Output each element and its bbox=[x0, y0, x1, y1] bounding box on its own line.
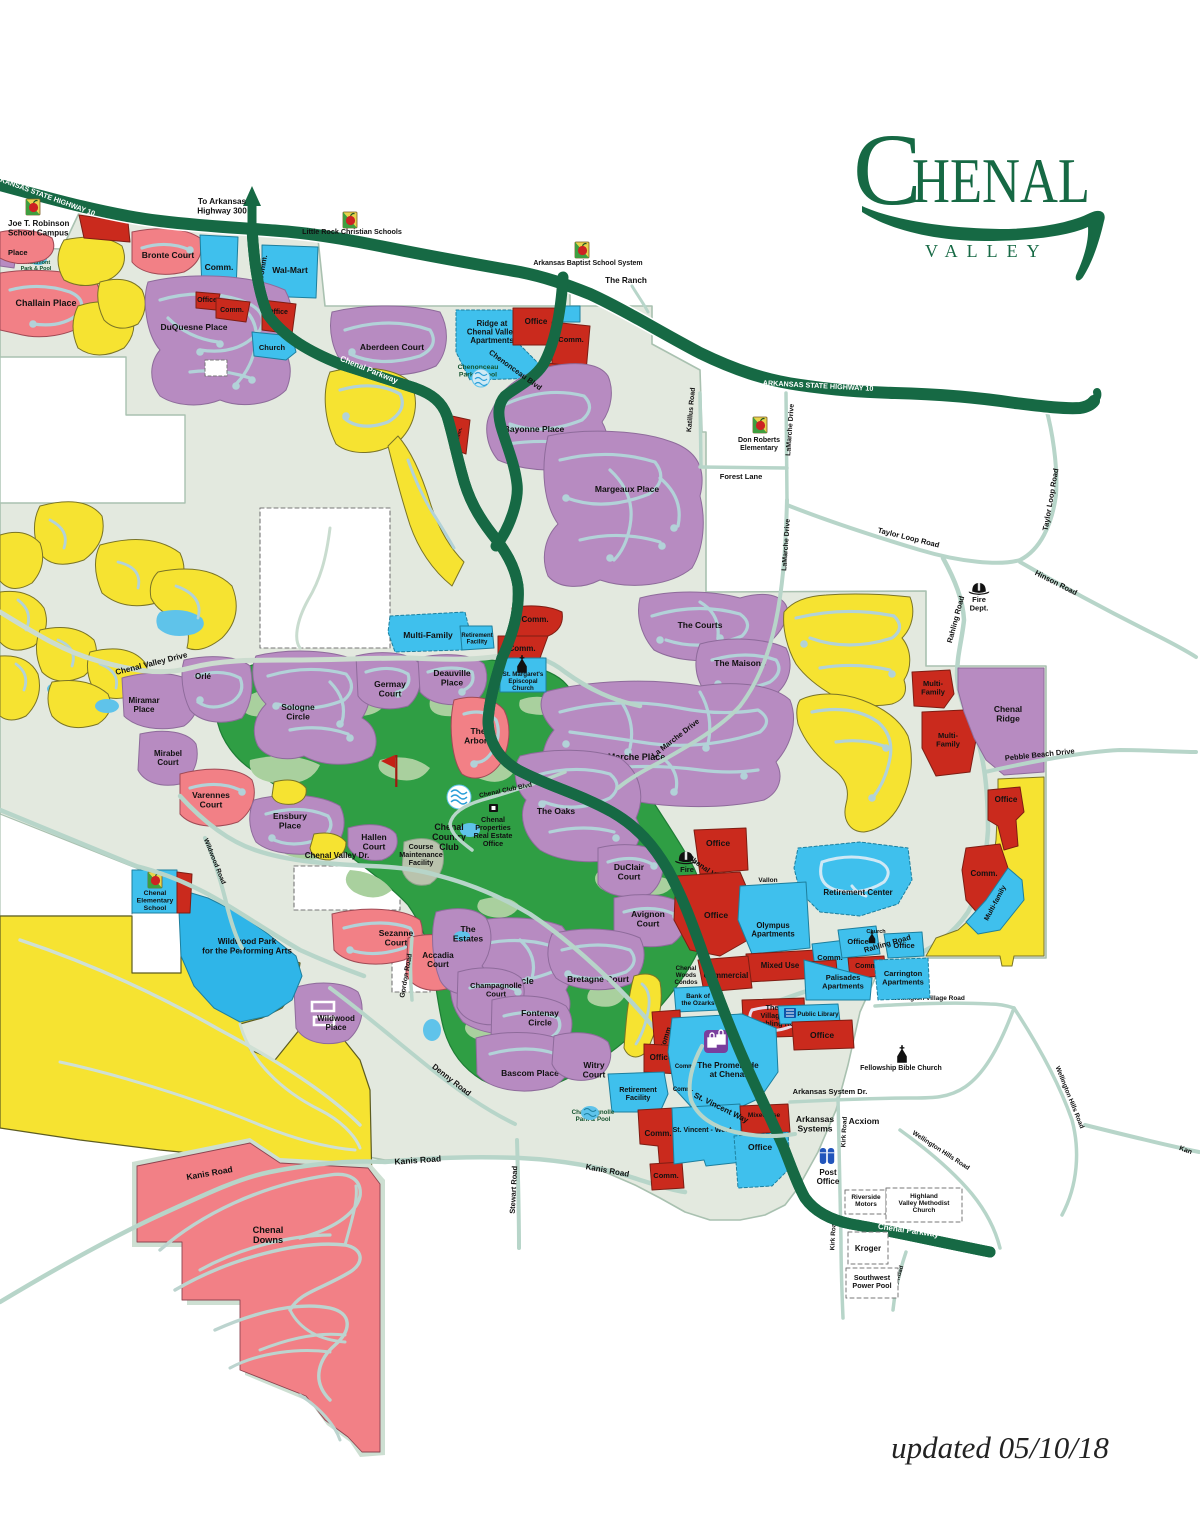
svg-text:Joe T. Robinson: Joe T. Robinson bbox=[8, 219, 69, 228]
svg-text:Bank of: Bank of bbox=[686, 993, 711, 1000]
svg-text:Comm.: Comm. bbox=[521, 615, 548, 624]
svg-text:Place: Place bbox=[326, 1023, 347, 1032]
svg-text:Place: Place bbox=[441, 678, 463, 688]
svg-text:HENAL: HENAL bbox=[912, 145, 1090, 216]
svg-text:DuClair: DuClair bbox=[614, 862, 645, 872]
svg-text:Condos: Condos bbox=[674, 979, 698, 986]
svg-text:Comm.: Comm. bbox=[653, 1171, 678, 1180]
svg-text:Systems: Systems bbox=[798, 1124, 833, 1134]
svg-text:for the Performing Arts: for the Performing Arts bbox=[202, 947, 292, 956]
svg-text:Germay: Germay bbox=[374, 679, 406, 689]
svg-text:Ensbury: Ensbury bbox=[273, 811, 307, 821]
svg-text:Bronte Court: Bronte Court bbox=[142, 250, 195, 260]
svg-text:Office: Office bbox=[706, 838, 730, 848]
svg-text:Retirement: Retirement bbox=[461, 633, 492, 639]
svg-text:The: The bbox=[460, 924, 475, 934]
svg-text:Court: Court bbox=[385, 938, 408, 948]
svg-text:Place: Place bbox=[279, 821, 301, 831]
svg-text:Church: Church bbox=[512, 685, 534, 692]
svg-text:Forest Lane: Forest Lane bbox=[720, 472, 763, 481]
svg-text:Apartments: Apartments bbox=[882, 978, 924, 987]
svg-text:Elementary: Elementary bbox=[740, 445, 778, 452]
svg-text:Office: Office bbox=[810, 1030, 834, 1040]
svg-text:Club: Club bbox=[439, 842, 459, 852]
svg-text:Comm.: Comm. bbox=[644, 1129, 671, 1138]
svg-text:Wildwood: Wildwood bbox=[317, 1014, 355, 1023]
svg-text:Acxiom: Acxiom bbox=[849, 1116, 880, 1126]
svg-text:Aberdeen Court: Aberdeen Court bbox=[360, 342, 424, 352]
svg-text:Park & Pool: Park & Pool bbox=[21, 266, 52, 272]
svg-text:Apartments: Apartments bbox=[751, 930, 795, 939]
svg-text:Family: Family bbox=[936, 740, 961, 749]
svg-text:Episcopal: Episcopal bbox=[508, 678, 538, 685]
svg-text:Witry: Witry bbox=[583, 1060, 604, 1070]
svg-text:Fellowship Bible Church: Fellowship Bible Church bbox=[860, 1065, 942, 1072]
svg-text:Highway 300: Highway 300 bbox=[197, 207, 247, 216]
svg-text:Comm.: Comm. bbox=[205, 262, 234, 272]
svg-text:Sologne: Sologne bbox=[281, 702, 315, 712]
svg-text:Little Rock Christian Schools: Little Rock Christian Schools bbox=[302, 227, 402, 236]
svg-text:Orlé: Orlé bbox=[195, 672, 212, 681]
svg-text:Place: Place bbox=[134, 705, 155, 714]
svg-text:Accadia: Accadia bbox=[422, 951, 454, 960]
svg-text:Highland: Highland bbox=[910, 1193, 938, 1200]
svg-text:Chenal: Chenal bbox=[994, 704, 1022, 714]
svg-text:Wildwood Park: Wildwood Park bbox=[218, 937, 277, 946]
svg-text:Bayonne Place: Bayonne Place bbox=[504, 424, 565, 434]
svg-text:Bretagne Court: Bretagne Court bbox=[567, 974, 629, 984]
svg-text:VALLEY: VALLEY bbox=[925, 241, 1049, 261]
svg-text:Estates: Estates bbox=[453, 934, 484, 944]
svg-text:the Ozarks: the Ozarks bbox=[681, 1000, 715, 1007]
svg-text:Circle: Circle bbox=[286, 712, 310, 722]
svg-text:Mirabel: Mirabel bbox=[154, 749, 182, 758]
svg-text:Office: Office bbox=[483, 839, 503, 848]
svg-text:Varennes: Varennes bbox=[192, 790, 230, 800]
svg-text:Apartments: Apartments bbox=[470, 336, 514, 345]
svg-text:Apartments: Apartments bbox=[822, 982, 864, 991]
svg-text:School: School bbox=[144, 905, 167, 912]
svg-text:Court: Court bbox=[200, 800, 223, 810]
svg-text:Margeaux Place: Margeaux Place bbox=[595, 484, 660, 494]
svg-text:Arkansas System Dr.: Arkansas System Dr. bbox=[793, 1087, 868, 1096]
svg-text:Don Roberts: Don Roberts bbox=[738, 437, 780, 444]
svg-text:Church: Church bbox=[259, 343, 286, 352]
svg-text:Court: Court bbox=[379, 689, 402, 699]
svg-text:The Ranch: The Ranch bbox=[605, 276, 647, 285]
svg-text:Circle: Circle bbox=[528, 1018, 552, 1028]
svg-text:Place: Place bbox=[8, 248, 28, 257]
svg-text:Family: Family bbox=[921, 688, 946, 697]
svg-text:The Oaks: The Oaks bbox=[537, 806, 576, 816]
svg-text:DuQuesne Place: DuQuesne Place bbox=[160, 322, 227, 332]
svg-text:Vallon: Vallon bbox=[758, 877, 777, 884]
svg-text:Court: Court bbox=[427, 960, 449, 969]
svg-text:Sezanne: Sezanne bbox=[379, 928, 414, 938]
svg-text:Office: Office bbox=[704, 910, 728, 920]
svg-text:Arkansas: Arkansas bbox=[796, 1114, 835, 1124]
svg-text:Comm.: Comm. bbox=[558, 335, 583, 344]
svg-text:Public Library: Public Library bbox=[797, 1011, 839, 1018]
svg-text:Hallen: Hallen bbox=[361, 832, 387, 842]
svg-text:Post: Post bbox=[819, 1168, 837, 1177]
svg-text:St. Margaret's: St. Margaret's bbox=[503, 671, 544, 678]
svg-text:Chenal Valley Dr.: Chenal Valley Dr. bbox=[305, 851, 369, 860]
svg-text:Office: Office bbox=[817, 1177, 840, 1186]
svg-text:Deauville: Deauville bbox=[433, 668, 471, 678]
svg-text:Chenal: Chenal bbox=[253, 1225, 284, 1235]
svg-text:Ridge: Ridge bbox=[996, 714, 1020, 724]
svg-text:Woods: Woods bbox=[676, 972, 697, 979]
svg-text:Court: Court bbox=[583, 1070, 606, 1080]
svg-text:Elementary: Elementary bbox=[137, 898, 174, 905]
svg-text:Facility: Facility bbox=[626, 1093, 651, 1102]
svg-text:School Campus: School Campus bbox=[8, 229, 69, 238]
svg-text:Office: Office bbox=[197, 297, 217, 304]
svg-text:Valley Methodist: Valley Methodist bbox=[899, 1200, 951, 1207]
svg-text:Facility: Facility bbox=[467, 640, 488, 646]
svg-text:Challain Place: Challain Place bbox=[15, 298, 76, 308]
svg-text:Office: Office bbox=[525, 317, 548, 326]
svg-text:The Maisons: The Maisons bbox=[714, 658, 766, 668]
svg-text:Court: Court bbox=[637, 919, 660, 929]
svg-text:Dept.: Dept. bbox=[970, 604, 989, 613]
svg-text:Bascom Place: Bascom Place bbox=[501, 1068, 559, 1078]
svg-text:Kroger: Kroger bbox=[855, 1244, 881, 1253]
svg-text:Comm.: Comm. bbox=[970, 869, 997, 878]
svg-text:Church: Church bbox=[866, 929, 886, 935]
svg-text:Court: Court bbox=[618, 872, 641, 882]
svg-text:Downs: Downs bbox=[253, 1235, 283, 1245]
svg-text:To Arkansas: To Arkansas bbox=[198, 197, 247, 206]
svg-text:The Courts: The Courts bbox=[678, 620, 723, 630]
svg-text:Court: Court bbox=[157, 758, 179, 767]
svg-text:Multi-Family: Multi-Family bbox=[403, 630, 453, 640]
svg-text:Office: Office bbox=[748, 1142, 772, 1152]
svg-text:Chenal: Chenal bbox=[144, 890, 167, 897]
svg-text:Office: Office bbox=[995, 795, 1018, 804]
svg-text:Wal-Mart: Wal-Mart bbox=[272, 265, 308, 275]
svg-text:Miramar: Miramar bbox=[128, 696, 159, 705]
svg-text:Church: Church bbox=[913, 1207, 936, 1214]
svg-text:at Chenal: at Chenal bbox=[710, 1070, 747, 1079]
svg-text:Facility: Facility bbox=[409, 858, 434, 867]
svg-text:Fontenay: Fontenay bbox=[521, 1008, 559, 1018]
svg-text:Court: Court bbox=[363, 842, 386, 852]
svg-text:updated 05/10/18: updated 05/10/18 bbox=[891, 1430, 1109, 1465]
svg-text:Retirement Center: Retirement Center bbox=[823, 888, 892, 897]
svg-text:Chenal: Chenal bbox=[676, 965, 697, 972]
svg-text:Comm.: Comm. bbox=[220, 307, 244, 314]
svg-text:Power Pool: Power Pool bbox=[852, 1281, 891, 1290]
svg-text:Arkansas Baptist School System: Arkansas Baptist School System bbox=[533, 260, 642, 267]
svg-text:Avignon: Avignon bbox=[631, 909, 665, 919]
svg-text:Motors: Motors bbox=[855, 1201, 877, 1208]
svg-text:Riverside: Riverside bbox=[851, 1194, 881, 1201]
svg-text:Mixed Use: Mixed Use bbox=[761, 961, 800, 970]
